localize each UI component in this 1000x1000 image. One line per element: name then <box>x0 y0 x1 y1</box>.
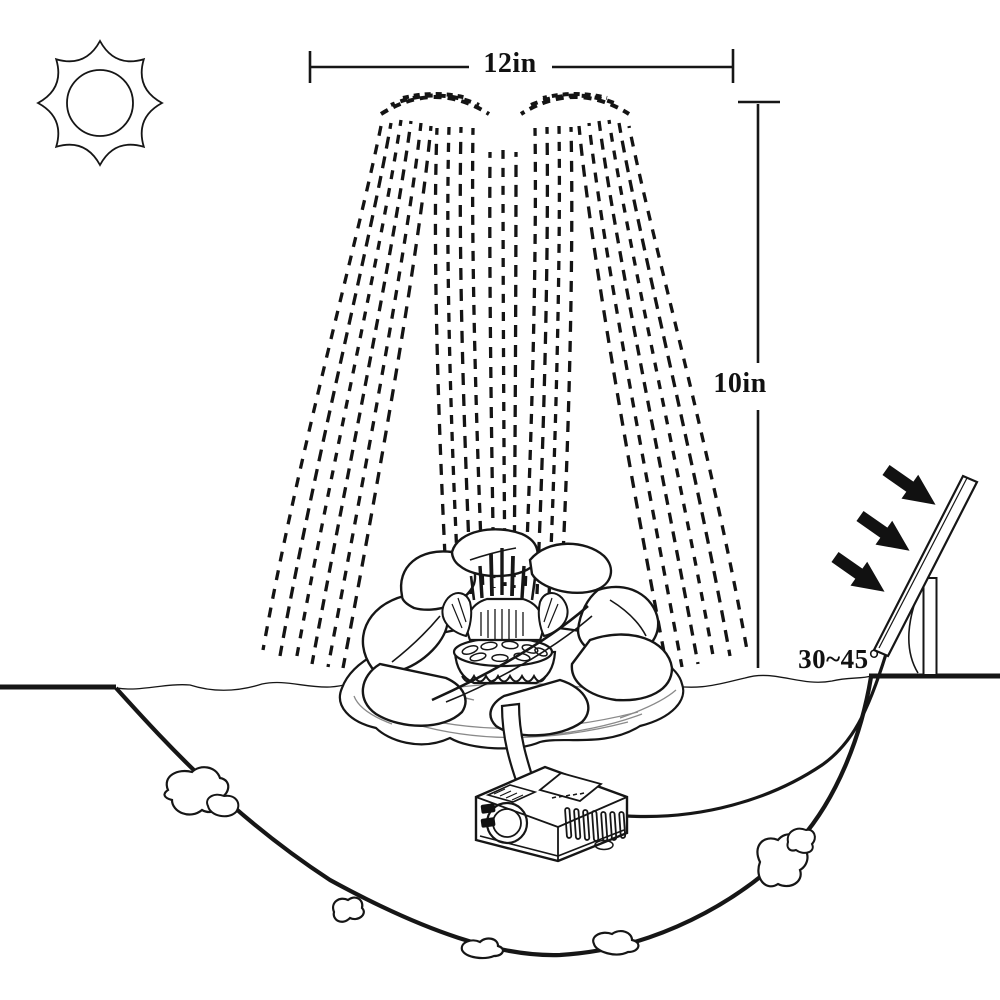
sunlight-arrow <box>827 545 893 604</box>
sunlight-arrow <box>878 458 944 517</box>
panel-support <box>924 578 937 675</box>
spray-width-label: 12in <box>455 48 565 80</box>
spray-height-label: 10in <box>703 368 777 400</box>
panel-angle-label: 30~45° <box>783 644 895 675</box>
sunlight-arrow <box>852 504 918 563</box>
water-spray <box>263 94 747 668</box>
water-pump <box>476 767 627 861</box>
sun-icon <box>38 41 162 165</box>
diagram-drawing <box>0 0 1000 1000</box>
diagram-canvas: 12in 10in 30~45° <box>0 0 1000 1000</box>
